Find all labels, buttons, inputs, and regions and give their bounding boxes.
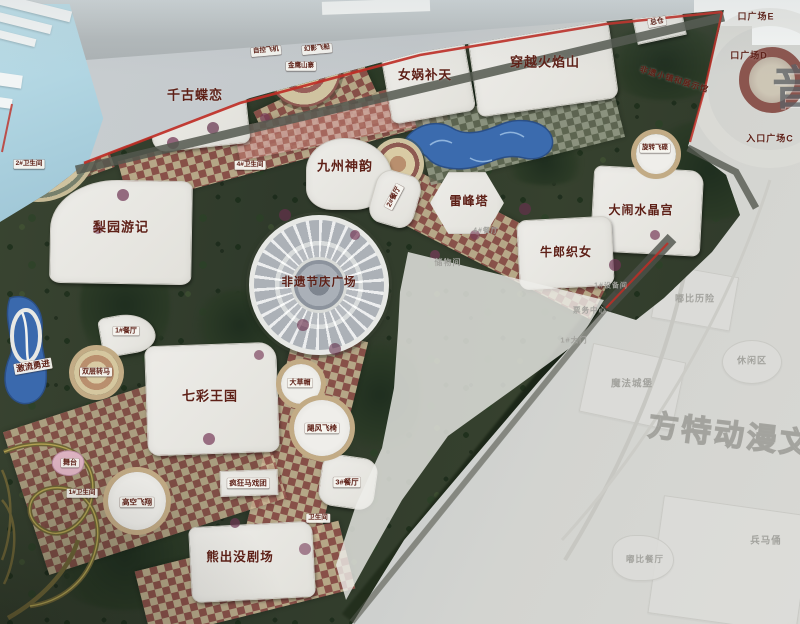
label-dubi-lixian: 嘟比历险 xyxy=(675,295,715,304)
label-gate-1: 1#大门 xyxy=(560,336,587,344)
label-shebeijian: 1#设备间 xyxy=(594,283,628,290)
label-chuwujian: 储物间 xyxy=(435,259,462,267)
label-xiuxianqu: 休闲区 xyxy=(737,357,767,366)
park-map-photo: 千古蝶恋女娲补天穿越火焰山九州神韵雷峰塔大闹水晶宫牛郎织女梨园游记非遗节庆广场七… xyxy=(0,0,800,624)
label-canteen-4: 4#餐厅 xyxy=(473,228,499,235)
label-piaowu-zhongxin: 票务中心 xyxy=(573,306,607,314)
glass-reflection-character: 音 xyxy=(772,52,800,118)
label-bingmayong: 兵马俑 xyxy=(750,536,782,546)
label-dubi-canting: 嘟比餐厅 xyxy=(626,555,664,564)
label-mofa-chengbao: 魔法城堡 xyxy=(611,379,653,389)
faint-labels: 储物间4#餐厅1#设备间票务中心1#大门嘟比历险休闲区魔法城堡嘟比餐厅兵马俑 xyxy=(0,0,800,624)
